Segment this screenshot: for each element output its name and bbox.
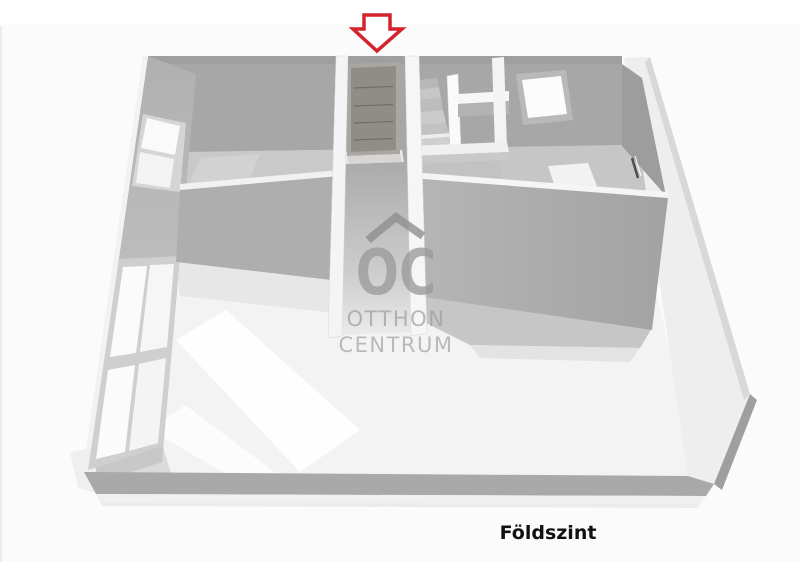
floorplan-page: OC OTTHON CENTRUM Földszint	[0, 0, 800, 562]
left-edge-line	[0, 26, 2, 562]
window-back-right	[516, 70, 573, 125]
window-pane	[522, 76, 567, 118]
watermark-logo: OC	[356, 237, 437, 309]
watermark-brand-line1: OTTHON	[347, 307, 446, 331]
watermark-brand-line2: CENTRUM	[338, 333, 453, 357]
floor-label: Földszint	[500, 522, 597, 544]
front-wall-top	[84, 472, 714, 496]
front-door	[347, 62, 402, 164]
floorplan-3d-render: OC OTTHON CENTRUM Földszint	[0, 0, 800, 562]
